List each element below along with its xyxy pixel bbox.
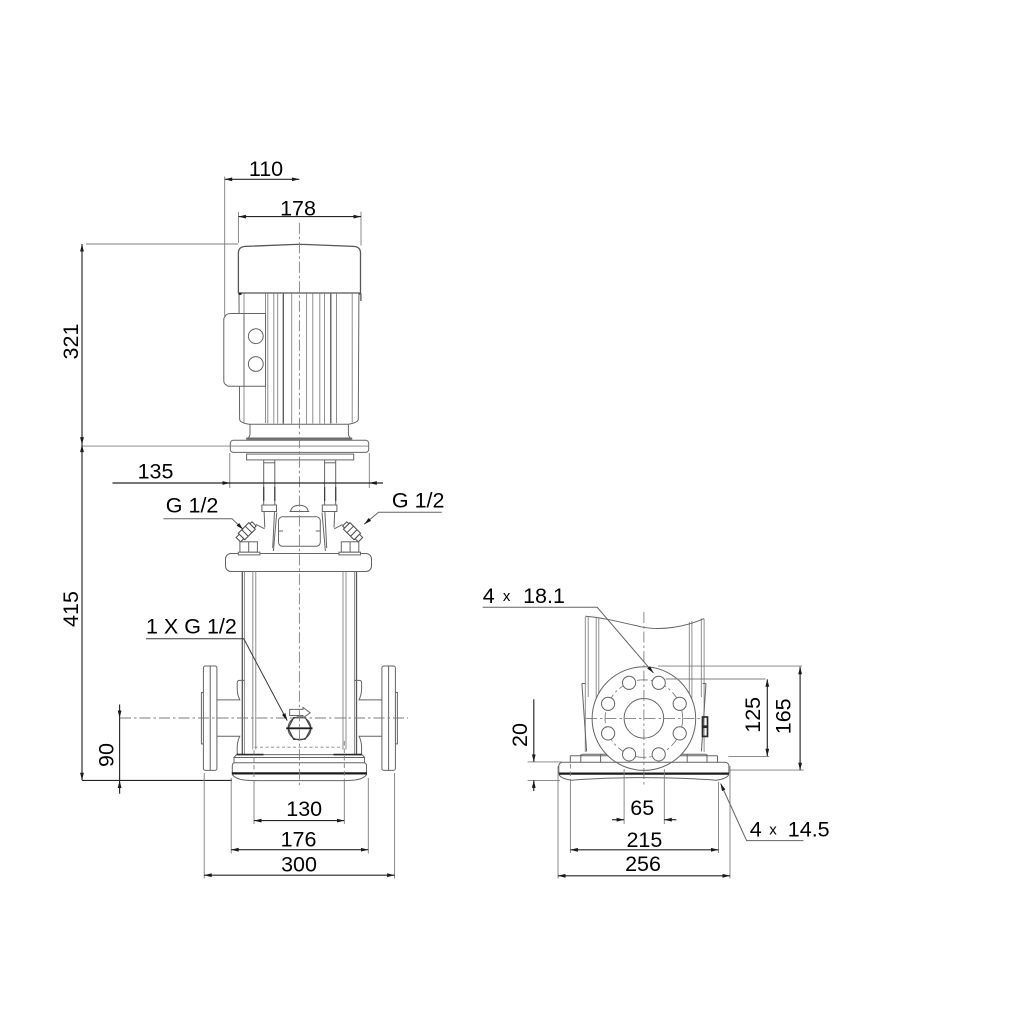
svg-text:256: 256 xyxy=(625,852,661,876)
svg-text:178: 178 xyxy=(280,197,316,221)
svg-text:14.5: 14.5 xyxy=(788,817,830,841)
svg-text:165: 165 xyxy=(772,698,796,734)
svg-text:321: 321 xyxy=(59,324,83,360)
svg-text:90: 90 xyxy=(95,743,119,767)
svg-text:130: 130 xyxy=(286,797,322,821)
svg-text:4: 4 xyxy=(750,817,762,841)
svg-text:300: 300 xyxy=(281,853,317,877)
svg-text:110: 110 xyxy=(249,157,283,181)
svg-text:20: 20 xyxy=(508,723,532,747)
svg-text:x: x xyxy=(503,588,511,605)
svg-text:4: 4 xyxy=(483,584,495,608)
svg-text:176: 176 xyxy=(281,828,317,852)
svg-text:x: x xyxy=(769,821,777,838)
svg-text:215: 215 xyxy=(626,828,662,852)
svg-text:1 X G 1/2: 1 X G 1/2 xyxy=(146,615,237,639)
svg-text:65: 65 xyxy=(630,796,654,820)
svg-text:135: 135 xyxy=(138,459,174,483)
svg-text:G 1/2: G 1/2 xyxy=(166,493,219,517)
svg-text:18.1: 18.1 xyxy=(523,584,565,608)
svg-text:125: 125 xyxy=(741,697,765,733)
svg-text:415: 415 xyxy=(59,591,83,627)
svg-text:G 1/2: G 1/2 xyxy=(392,488,445,512)
